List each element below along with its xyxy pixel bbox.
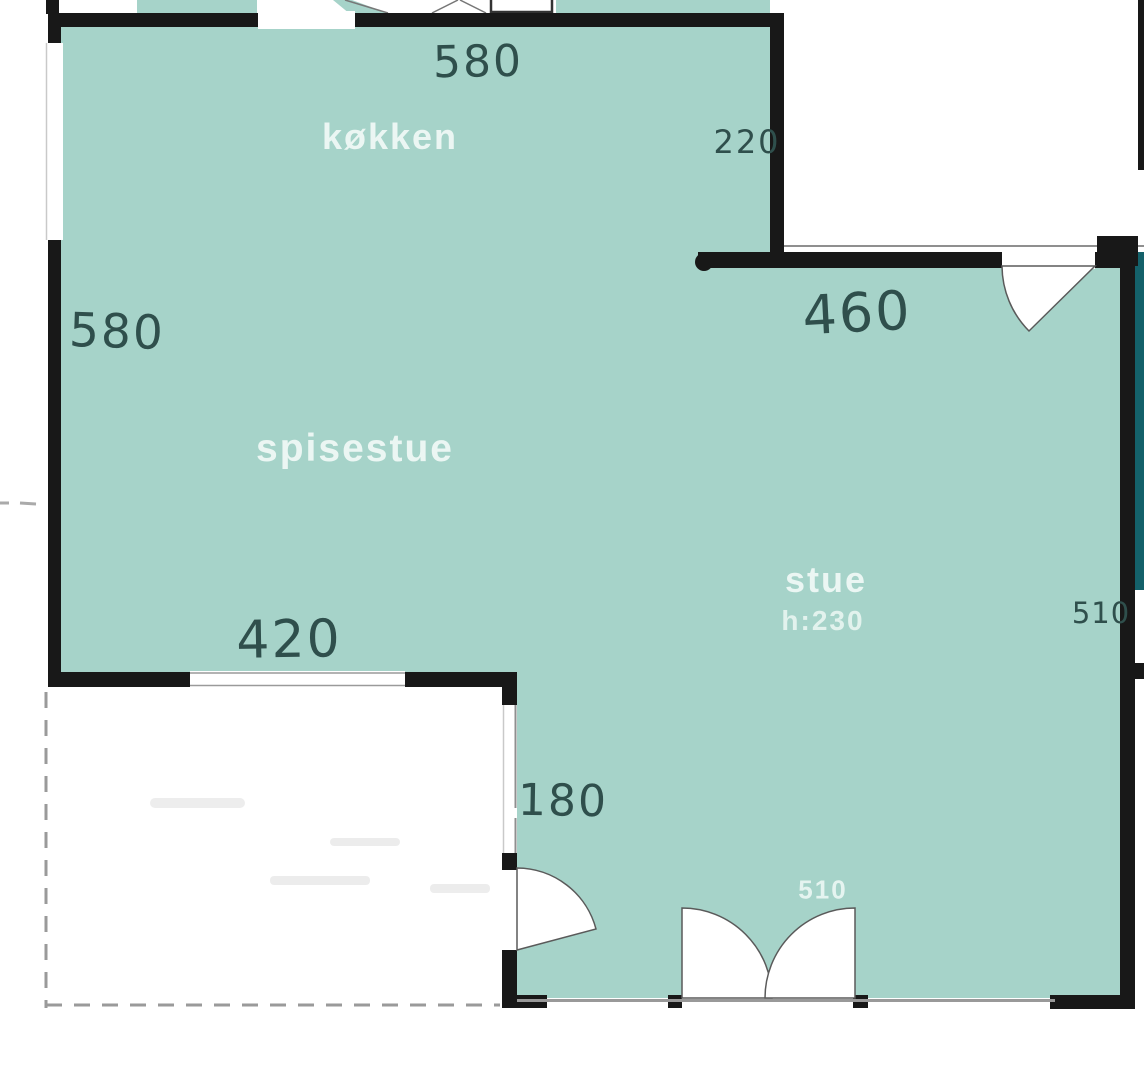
window-left-wall: [46, 43, 63, 240]
top-door-swing-line: [432, 0, 458, 13]
room-sliver-top-right: [556, 0, 770, 14]
wall-left-main: [48, 240, 61, 686]
wall-right-stub: [1120, 663, 1144, 679]
terrace-smudges: [150, 798, 490, 893]
room-sliver-top-left: [137, 0, 257, 14]
top-window-symbol: [491, 0, 552, 12]
opening-stue-left: [501, 870, 517, 950]
wall-left-top-corner: [46, 0, 59, 14]
opening-top-wall: [258, 11, 355, 29]
tick-mark: [20, 503, 36, 504]
wall-top-right: [355, 13, 770, 27]
wall-stue-top: [698, 252, 1002, 268]
wall-top-left: [48, 13, 258, 27]
wall-divider-vertical: [770, 13, 784, 268]
wall-right: [1120, 252, 1135, 1008]
top-door-swing-line: [460, 0, 486, 13]
floor-plan: køkken spisestue stue h:230 510 580 220 …: [0, 0, 1144, 1085]
terrace-dashed-outline: [46, 692, 500, 1008]
wall-stue-top-cap: [695, 253, 713, 271]
room-area-main: [61, 26, 1122, 998]
wall-left-stub: [48, 13, 61, 43]
wall-corner-420: [502, 672, 517, 705]
left-edge-ticks: [0, 503, 36, 504]
wall-stue-left-mid: [502, 853, 517, 872]
wall-topright-edge: [1138, 0, 1144, 170]
floor-plan-drawing: [0, 0, 1144, 1085]
wall-stue-top-rightseg: [1095, 252, 1135, 268]
